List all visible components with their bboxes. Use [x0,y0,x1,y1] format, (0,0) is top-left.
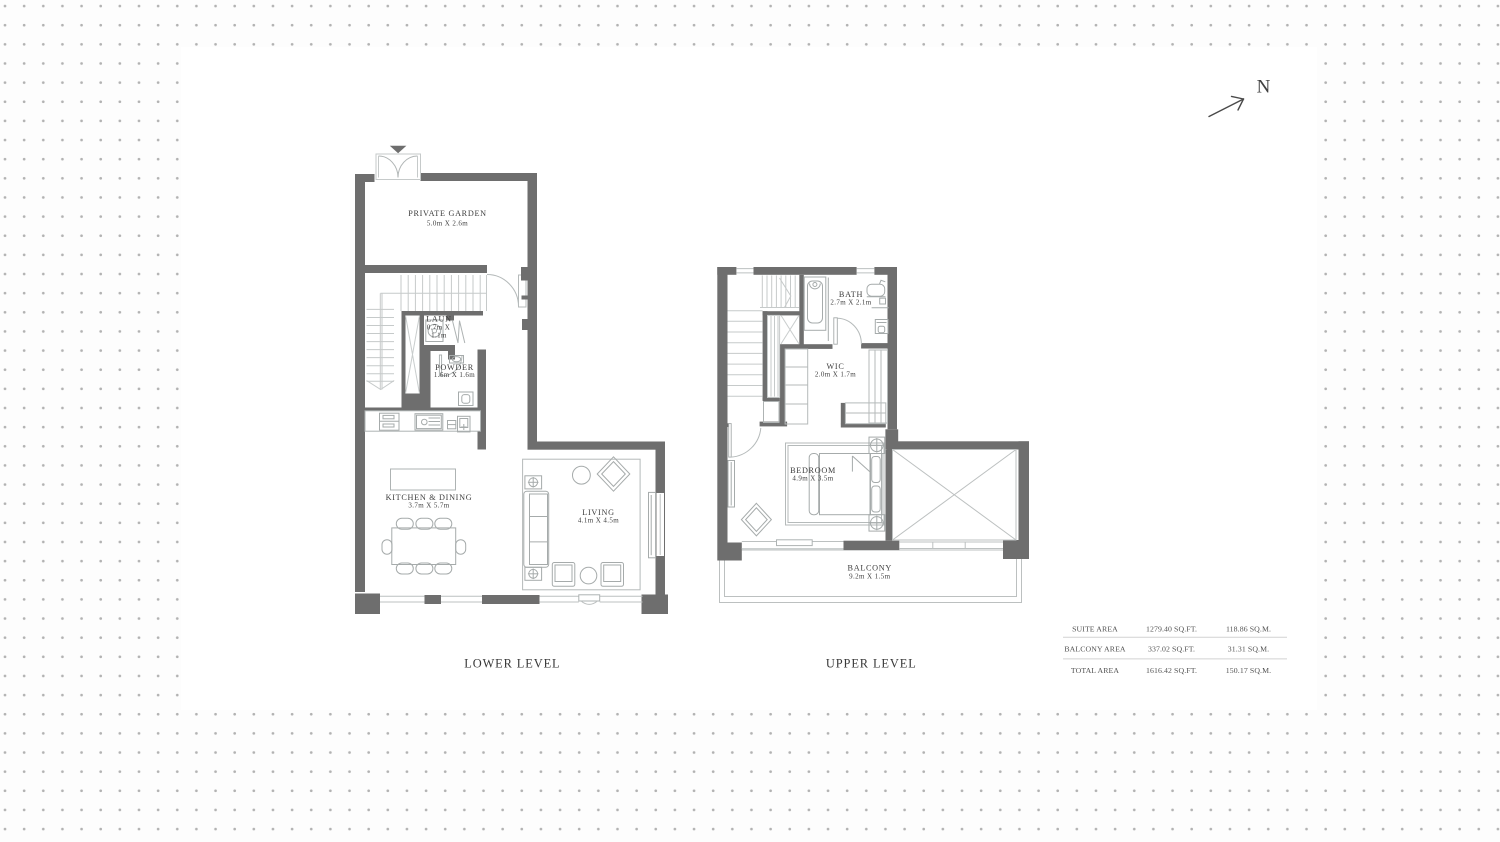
svg-text:TOTAL AREA: TOTAL AREA [1071,666,1120,675]
svg-text:1.6m X 1.6m: 1.6m X 1.6m [434,371,475,379]
svg-text:31.31 SQ.M.: 31.31 SQ.M. [1228,645,1269,654]
svg-text:1616.42 SQ.FT.: 1616.42 SQ.FT. [1146,666,1197,675]
svg-text:9.2m X 1.5m: 9.2m X 1.5m [849,573,890,581]
svg-text:UPPER LEVEL: UPPER LEVEL [826,657,917,671]
svg-text:2.7m X 2.1m: 2.7m X 2.1m [830,299,871,307]
svg-text:BALCONY: BALCONY [848,564,892,573]
svg-text:1.1m: 1.1m [431,331,447,339]
svg-text:4.1m X 4.5m: 4.1m X 4.5m [578,516,619,524]
svg-text:LAUN: LAUN [426,315,452,324]
svg-text:1279.40 SQ.FT.: 1279.40 SQ.FT. [1146,625,1197,634]
svg-text:5.0m X 2.6m: 5.0m X 2.6m [427,219,468,227]
svg-text:337.02 SQ.FT.: 337.02 SQ.FT. [1148,645,1195,654]
svg-text:4.9m X 3.5m: 4.9m X 3.5m [792,475,833,483]
svg-text:2.0m X 1.7m: 2.0m X 1.7m [815,371,856,379]
svg-text:118.86 SQ.M.: 118.86 SQ.M. [1226,625,1271,634]
svg-text:BALCONY AREA: BALCONY AREA [1064,645,1126,654]
svg-text:SUITE AREA: SUITE AREA [1072,625,1118,634]
svg-text:3.7m X 5.7m: 3.7m X 5.7m [408,502,449,510]
svg-text:150.17 SQ.M.: 150.17 SQ.M. [1226,666,1271,675]
svg-text:LOWER LEVEL: LOWER LEVEL [464,657,560,671]
svg-text:N: N [1257,77,1271,98]
svg-text:PRIVATE GARDEN: PRIVATE GARDEN [408,209,487,218]
